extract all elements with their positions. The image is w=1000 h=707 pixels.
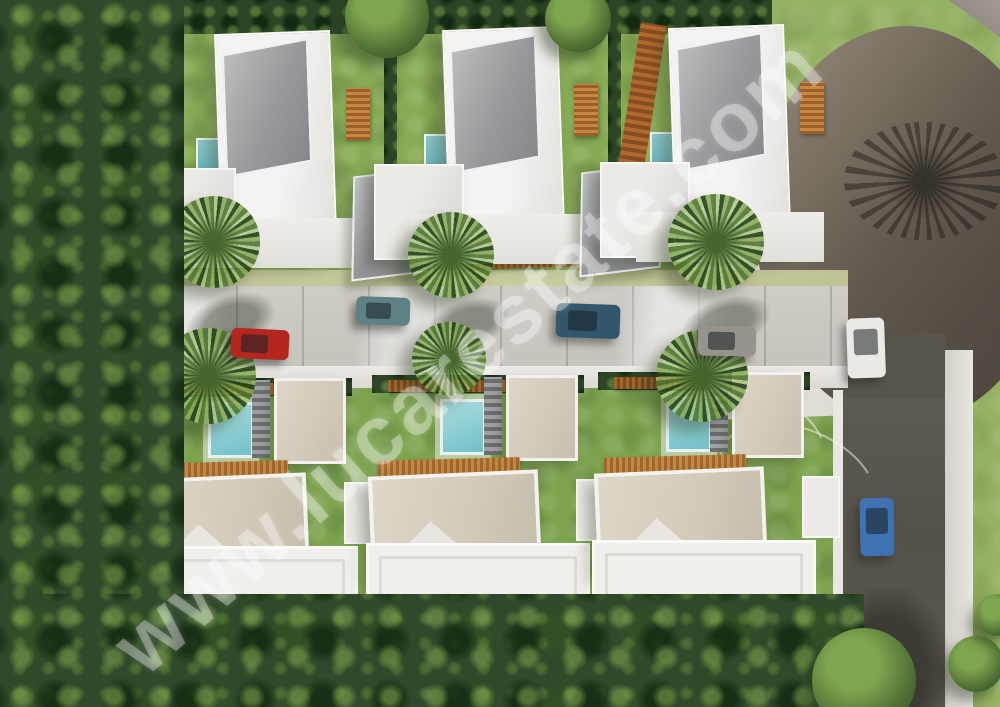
car-windshield (365, 302, 390, 320)
side-roof (802, 476, 840, 538)
car-windshield (854, 328, 878, 355)
car-teal (356, 296, 411, 326)
wood-pergola (346, 88, 370, 140)
grey-roof-panel (222, 38, 312, 178)
stairs (252, 380, 270, 458)
car-windshield (866, 508, 888, 534)
car-blue (859, 498, 894, 557)
car-windshield (708, 332, 735, 350)
car-grey (698, 325, 757, 356)
grey-roof-panel (450, 34, 540, 174)
car-red (230, 328, 289, 361)
bush (976, 594, 1000, 636)
upper-floor-roof (506, 375, 578, 461)
car-windshield (241, 334, 269, 353)
car-white (846, 317, 886, 378)
palm-shadow (844, 122, 1000, 240)
wood-pergola (574, 84, 598, 136)
aerial-render: www.lucarestate.com (0, 0, 1000, 707)
bush (948, 636, 1000, 692)
